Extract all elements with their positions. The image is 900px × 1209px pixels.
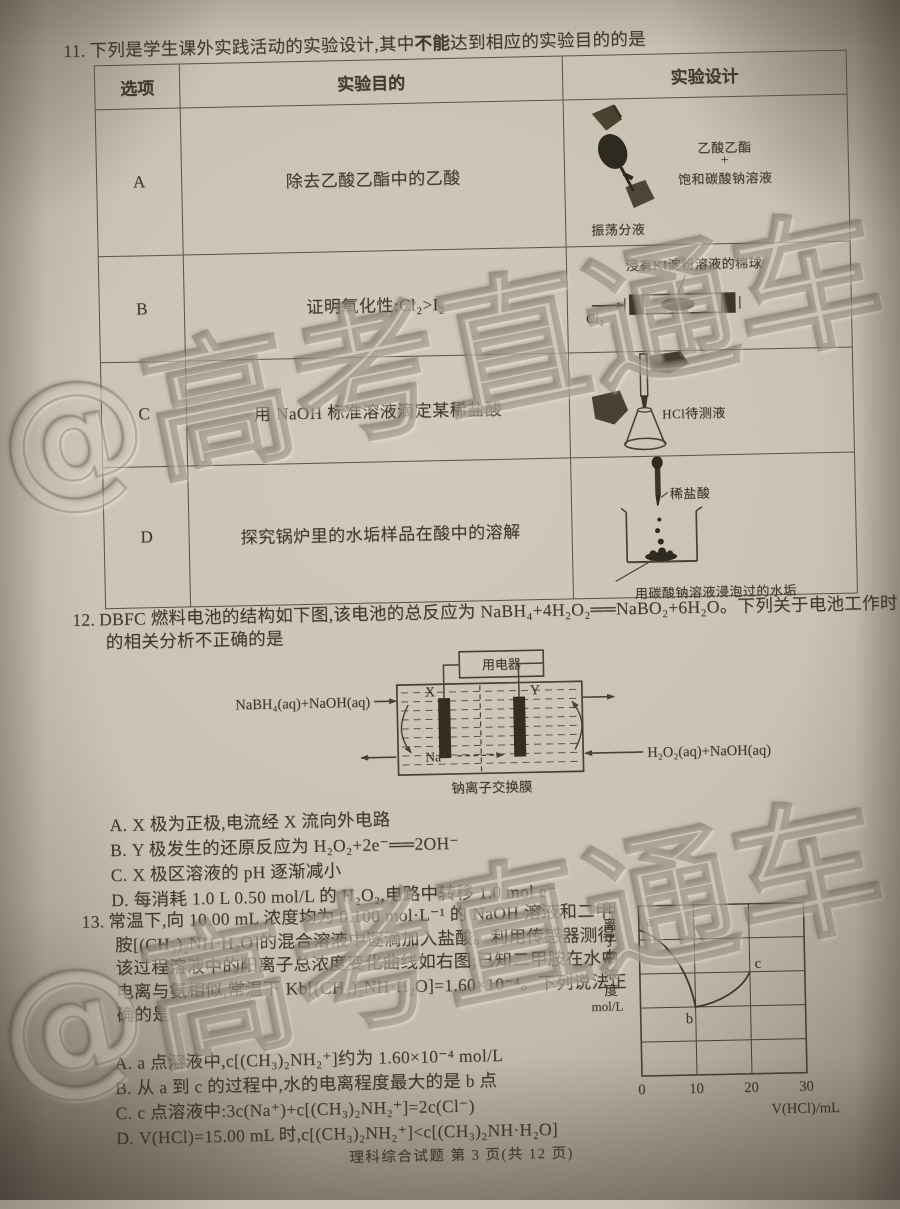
row-b-purpose: 证明氧化性:Cl₂>I₂ xyxy=(183,247,568,361)
label-hcl-sample: HCl待测液 xyxy=(662,402,726,422)
page-content: 11.下列是学生课外实践活动的实验设计,其中不能达到相应的实验目的的是 选项 实… xyxy=(0,0,900,1209)
q13-option-c-letter: C. xyxy=(115,1103,132,1123)
graph-y-axis-unit: mol/L xyxy=(591,998,623,1015)
table-row-d: D 探究锅炉里的水垢样品在酸中的溶解 xyxy=(103,452,858,609)
row-c-design: HCl待测液 xyxy=(568,347,854,458)
q12-options: A.X 极为正极,电流经 X 流向外电路 B.Y 极发生的还原反应为 H₂O₂+… xyxy=(109,804,556,913)
point-b-label: b xyxy=(686,1011,694,1027)
row-d-purpose: 探究锅炉里的水垢样品在酸中的溶解 xyxy=(188,458,574,607)
row-c-option: C xyxy=(100,361,187,468)
q12-option-c-letter: C. xyxy=(110,865,127,885)
label-chlorine-gas: Cl₂ xyxy=(586,311,605,327)
q13-option-c-text: c 点溶液中:3c(Na⁺)+c[(CH₃)₂NH₂⁺]=2c(Cl⁻) xyxy=(137,1096,475,1123)
q11-stem-post: 达到相应的实验目的的是 xyxy=(450,29,646,53)
point-c-label: c xyxy=(755,956,762,972)
left-feed-label: NaBH₄(aq)+NaOH(aq) xyxy=(235,695,370,714)
q12-option-a-text: X 极为正极,电流经 X 流向外电路 xyxy=(132,809,391,834)
row-d-design: 稀盐酸 用碳酸钠溶液浸泡过的水垢 xyxy=(571,452,858,599)
device-label: 用电器 xyxy=(482,657,521,673)
row-b-design: 浸有KI淀粉溶液的棉球 Cl₂ xyxy=(566,241,852,353)
q11-table: 选项 实验目的 实验设计 A 除去乙酸乙酯中的乙酸 乙酸乙酯 xyxy=(94,50,858,610)
q13-option-b-letter: B. xyxy=(115,1078,132,1098)
q13-graph: 阳离子总浓度 mol/L a b c 0 10 20 30 V(HCl)/mL xyxy=(589,887,900,1126)
q12-option-c-text: X 极区溶液的 pH 逐渐减小 xyxy=(132,860,342,884)
table-row-a: A 除去乙酸乙酯中的乙酸 乙酸乙酯 + 饱和碳酸钠溶液 振荡分液 xyxy=(95,94,850,257)
cation-concentration-chart: a b c 0 10 20 30 V(HCl)/mL xyxy=(589,887,900,1126)
q11-col-header-design: 实验设计 xyxy=(562,50,847,100)
label-dilute-hcl: 稀盐酸 xyxy=(670,483,711,503)
x-tick-20: 20 xyxy=(744,1080,759,1096)
electrode-x-label: X xyxy=(425,685,435,700)
row-a-design: 乙酸乙酯 + 饱和碳酸钠溶液 振荡分液 xyxy=(563,94,850,247)
q11-number: 11. xyxy=(63,41,86,61)
q11-col-header-option: 选项 xyxy=(94,64,180,110)
x-tick-10: 10 xyxy=(689,1081,704,1097)
graph-y-axis-label: 阳离子总浓度 xyxy=(597,901,619,1000)
label-shake-separate: 振荡分液 xyxy=(591,219,645,239)
beaker-dropper-illustration xyxy=(571,452,858,598)
x-axis-label: V(HCl)/mL xyxy=(771,1100,840,1117)
x-tick-0: 0 xyxy=(638,1082,646,1098)
q13-number: 13. xyxy=(81,911,104,931)
electrode-y-label: Y xyxy=(530,683,540,698)
row-a-purpose: 除去乙酸乙酯中的乙酸 xyxy=(180,100,566,255)
q12-option-a-letter: A. xyxy=(109,815,127,835)
point-a-label: a xyxy=(646,914,653,930)
row-b-option: B xyxy=(98,255,185,363)
q13-options: A.a 点溶液中,c[(CH₃)₂NH₂⁺]约为 1.60×10⁻⁴ mol/L… xyxy=(114,1042,558,1151)
scanned-exam-page: { "page": { "footer": "理科综合试题 第 3 页(共 12… xyxy=(0,0,900,1200)
membrane-label: 钠离子交换膜 xyxy=(451,778,532,796)
fuel-cell-diagram: 用电器 X Y NaBH₄(aq)+NaOH(aq) xyxy=(211,641,794,805)
sodium-ion-label: Na⁺ xyxy=(425,749,448,764)
q12-figure: 用电器 X Y NaBH₄(aq)+NaOH(aq) xyxy=(211,641,794,808)
row-c-purpose: 用 NaOH 标准溶液滴定某稀盐酸 xyxy=(185,353,570,466)
q11-stem-pre: 下列是学生课外实践活动的实验设计,其中 xyxy=(89,34,414,61)
q13-option-a-letter: A. xyxy=(114,1053,132,1073)
q12-option-b-text: Y 极发生的还原反应为 H₂O₂+2e⁻══2OH⁻ xyxy=(132,833,460,860)
q11-stem-emphasis: 不能 xyxy=(414,33,450,54)
right-feed-label: H₂O₂(aq)+NaOH(aq) xyxy=(647,742,771,761)
q12-number: 12. xyxy=(72,609,95,629)
q13-stem-text: 常温下,向 10.00 mL 浓度均为 0.100 mol·L⁻¹ 的 NaOH… xyxy=(108,901,627,1025)
q12-option-d-letter: D. xyxy=(111,890,129,910)
row-d-option: D xyxy=(103,466,191,609)
table-row-c: C 用 NaOH 标准溶液滴定某稀盐酸 HCl待测液 xyxy=(100,347,854,468)
label-saturated-sodium-carbonate: 饱和碳酸钠溶液 xyxy=(635,166,815,189)
x-tick-30: 30 xyxy=(799,1078,814,1094)
q12-option-b-letter: B. xyxy=(110,840,127,860)
table-row-b: B 证明氧化性:Cl₂>I₂ xyxy=(98,241,852,363)
q13-stem: 13.常温下,向 10.00 mL 浓度均为 0.100 mol·L⁻¹ 的 N… xyxy=(81,899,628,1028)
q13-option-d-letter: D. xyxy=(116,1128,134,1148)
row-a-option: A xyxy=(95,108,183,257)
